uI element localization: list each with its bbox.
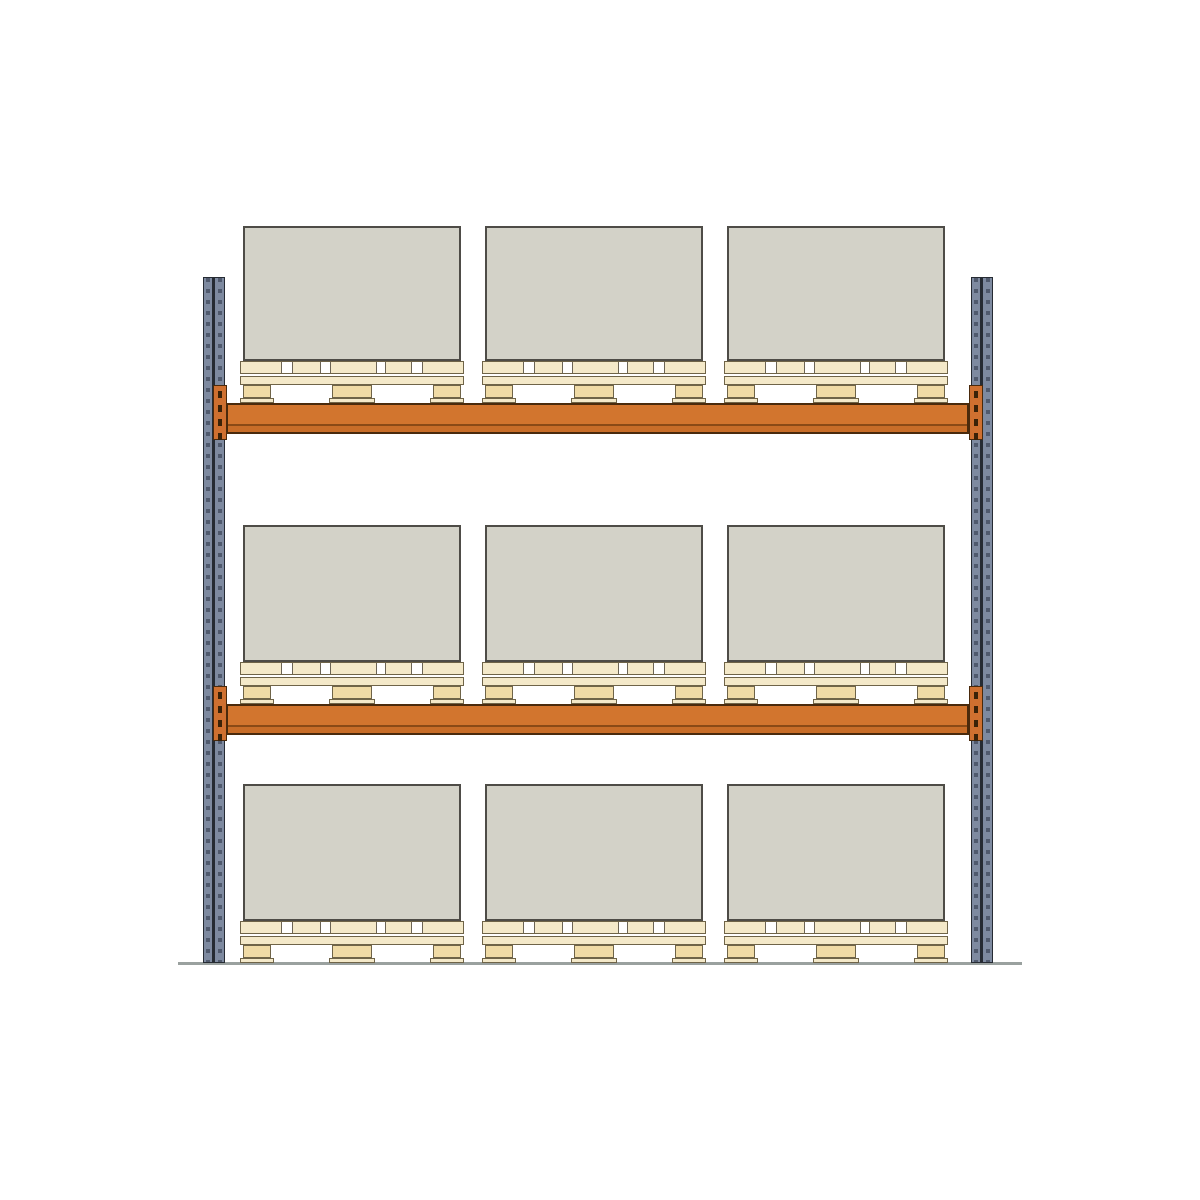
pallet-top-deck-board <box>240 361 464 374</box>
pallet-foot-board <box>914 398 948 403</box>
bracket-slot <box>974 433 978 440</box>
deck-board-gap <box>320 362 331 373</box>
upright-flange-back <box>215 278 224 962</box>
pallet-block <box>574 686 614 699</box>
pallet <box>482 361 706 403</box>
pallet-block <box>243 686 271 699</box>
pallet-foot-board <box>240 699 274 704</box>
deck-board-gap <box>281 663 293 674</box>
pallet-block <box>243 385 271 398</box>
deck-board-gap <box>562 922 573 933</box>
pallet-foot-board <box>672 958 706 963</box>
deck-board-gap <box>411 922 423 933</box>
beam-bracket-upper-right <box>969 385 983 440</box>
deck-board-gap <box>895 663 907 674</box>
deck-board-gap <box>376 663 386 674</box>
pallet <box>240 662 464 704</box>
pallet-foot-board <box>329 398 375 403</box>
beam-bracket-lower-left <box>213 686 227 741</box>
pallet-stringer-board <box>482 677 706 686</box>
pallet-block <box>675 945 703 958</box>
pallet-foot-board <box>240 958 274 963</box>
pallet-block <box>917 385 945 398</box>
bracket-slot <box>218 734 222 741</box>
deck-board-gap <box>765 663 777 674</box>
pallet-block <box>332 385 372 398</box>
cargo-box <box>485 525 703 662</box>
pallet-block <box>675 385 703 398</box>
pallet-foot-board <box>430 699 464 704</box>
pallet-block <box>433 686 461 699</box>
pallet-top-deck-board <box>724 921 948 934</box>
beam-bracket-upper-left <box>213 385 227 440</box>
pallet-block <box>574 945 614 958</box>
beam-bracket-lower-right <box>969 686 983 741</box>
pallet-top-deck-board <box>724 361 948 374</box>
deck-board-gap <box>765 362 777 373</box>
pallet <box>724 921 948 963</box>
bracket-slot <box>974 706 978 713</box>
bracket-slot <box>218 419 222 426</box>
bracket-slot <box>974 734 978 741</box>
pallet <box>724 662 948 704</box>
upright-flange-back <box>983 278 992 962</box>
pallet-stringer-board <box>240 376 464 385</box>
deck-board-gap <box>562 663 573 674</box>
deck-board-gap <box>281 922 293 933</box>
cargo-box <box>485 226 703 361</box>
bracket-slot <box>218 720 222 727</box>
pallet-foot-board <box>914 699 948 704</box>
pallet-stringer-board <box>482 936 706 945</box>
pallet-foot-board <box>672 699 706 704</box>
cargo-box <box>727 226 945 361</box>
pallet-foot-board <box>724 398 758 403</box>
bracket-slot <box>974 391 978 398</box>
pallet-block <box>243 945 271 958</box>
deck-board-gap <box>523 663 535 674</box>
pallet-block <box>917 945 945 958</box>
cargo-box <box>243 784 461 921</box>
deck-board-gap <box>804 922 815 933</box>
pallet-block <box>727 686 755 699</box>
rack-upright-left <box>203 277 225 963</box>
pallet-foot-board <box>724 958 758 963</box>
deck-board-gap <box>320 922 331 933</box>
deck-board-gap <box>860 922 870 933</box>
pallet-block <box>727 945 755 958</box>
pallet-foot-board <box>813 398 859 403</box>
deck-board-gap <box>618 922 628 933</box>
pallet <box>724 361 948 403</box>
pallet-block <box>433 945 461 958</box>
deck-board-gap <box>765 922 777 933</box>
deck-board-gap <box>895 922 907 933</box>
pallet-foot-board <box>724 699 758 704</box>
deck-board-gap <box>281 362 293 373</box>
shelf-beam-lower <box>226 704 969 735</box>
deck-board-gap <box>376 922 386 933</box>
pallet-foot-board <box>813 699 859 704</box>
beam-lower-flange <box>228 424 967 432</box>
deck-board-gap <box>411 663 423 674</box>
pallet-block <box>816 686 856 699</box>
bracket-slot <box>218 706 222 713</box>
bracket-slot <box>974 692 978 699</box>
pallet-block <box>332 686 372 699</box>
bracket-slot <box>218 391 222 398</box>
pallet-foot-board <box>430 398 464 403</box>
deck-board-gap <box>653 663 665 674</box>
bracket-slot <box>218 692 222 699</box>
pallet-top-deck-board <box>482 921 706 934</box>
pallet-block <box>675 686 703 699</box>
pallet-top-deck-board <box>482 361 706 374</box>
pallet-foot-board <box>571 958 617 963</box>
deck-board-gap <box>653 362 665 373</box>
upright-flange-front <box>972 278 980 962</box>
bracket-slot <box>218 405 222 412</box>
pallet-foot-board <box>430 958 464 963</box>
pallet-top-deck-board <box>240 921 464 934</box>
pallet-foot-board <box>329 958 375 963</box>
pallet-stringer-board <box>240 936 464 945</box>
bracket-slot <box>974 405 978 412</box>
bracket-slot <box>218 433 222 440</box>
rack-upright-right <box>971 277 993 963</box>
pallet-block <box>816 385 856 398</box>
cargo-box <box>727 525 945 662</box>
pallet-stringer-board <box>724 677 948 686</box>
deck-board-gap <box>653 922 665 933</box>
pallet-stringer-board <box>240 677 464 686</box>
pallet <box>482 921 706 963</box>
deck-board-gap <box>860 362 870 373</box>
pallet-block <box>332 945 372 958</box>
deck-board-gap <box>804 362 815 373</box>
pallet-stringer-board <box>482 376 706 385</box>
pallet-block <box>485 385 513 398</box>
pallet-block <box>917 686 945 699</box>
pallet-stringer-board <box>724 376 948 385</box>
beam-lower-flange <box>228 725 967 733</box>
cargo-box <box>485 784 703 921</box>
pallet-block <box>433 385 461 398</box>
pallet <box>240 361 464 403</box>
deck-board-gap <box>562 362 573 373</box>
pallet-top-deck-board <box>240 662 464 675</box>
deck-board-gap <box>376 362 386 373</box>
pallet-block <box>485 945 513 958</box>
deck-board-gap <box>804 663 815 674</box>
pallet-foot-board <box>482 958 516 963</box>
pallet-foot-board <box>329 699 375 704</box>
pallet-top-deck-board <box>482 662 706 675</box>
bracket-slot <box>974 419 978 426</box>
pallet-block <box>485 686 513 699</box>
pallet-block <box>727 385 755 398</box>
shelf-beam-upper <box>226 403 969 434</box>
pallet-foot-board <box>482 398 516 403</box>
pallet-foot-board <box>672 398 706 403</box>
deck-board-gap <box>523 922 535 933</box>
pallet <box>482 662 706 704</box>
pallet <box>240 921 464 963</box>
pallet-foot-board <box>240 398 274 403</box>
deck-board-gap <box>618 663 628 674</box>
racking-diagram <box>0 0 1200 1200</box>
pallet-foot-board <box>482 699 516 704</box>
pallet-stringer-board <box>724 936 948 945</box>
deck-board-gap <box>411 362 423 373</box>
upright-flange-front <box>204 278 212 962</box>
pallet-block <box>816 945 856 958</box>
deck-board-gap <box>895 362 907 373</box>
deck-board-gap <box>320 663 331 674</box>
pallet-foot-board <box>914 958 948 963</box>
deck-board-gap <box>860 663 870 674</box>
deck-board-gap <box>618 362 628 373</box>
cargo-box <box>243 226 461 361</box>
pallet-block <box>574 385 614 398</box>
bracket-slot <box>974 720 978 727</box>
cargo-box <box>243 525 461 662</box>
deck-board-gap <box>523 362 535 373</box>
pallet-top-deck-board <box>724 662 948 675</box>
pallet-foot-board <box>571 699 617 704</box>
pallet-foot-board <box>571 398 617 403</box>
pallet-foot-board <box>813 958 859 963</box>
cargo-box <box>727 784 945 921</box>
